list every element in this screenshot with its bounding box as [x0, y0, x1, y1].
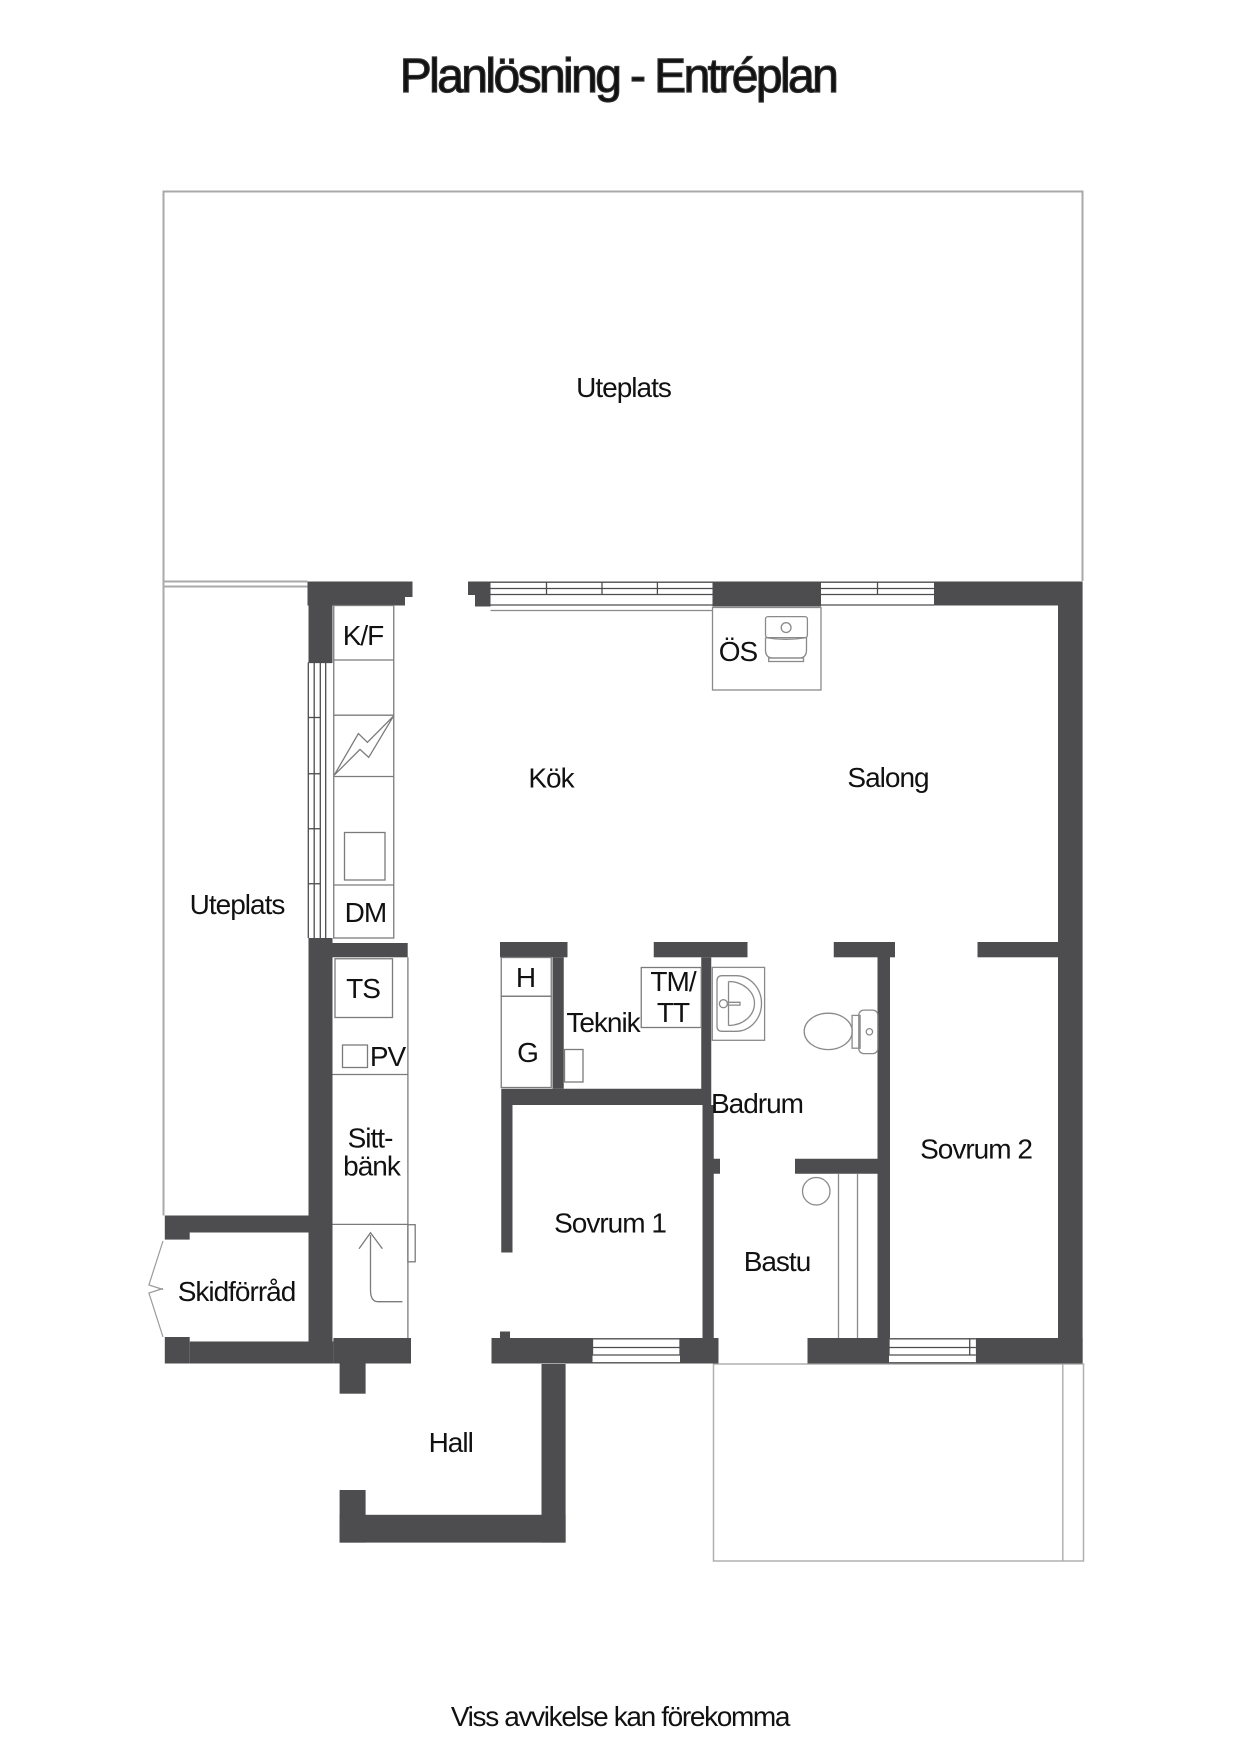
svg-text:DM: DM	[345, 897, 387, 928]
svg-text:Kök: Kök	[528, 763, 575, 794]
svg-text:TS: TS	[346, 973, 380, 1004]
svg-text:TT: TT	[657, 997, 690, 1028]
svg-text:Uteplats: Uteplats	[190, 889, 285, 920]
svg-text:Badrum: Badrum	[711, 1088, 803, 1119]
svg-text:TM/: TM/	[650, 966, 696, 997]
svg-text:ÖS: ÖS	[719, 636, 758, 667]
svg-text:Teknik: Teknik	[566, 1007, 641, 1038]
svg-text:Salong: Salong	[847, 762, 928, 793]
svg-text:Bastu: Bastu	[744, 1246, 811, 1277]
svg-text:Hall: Hall	[429, 1427, 473, 1458]
svg-text:H: H	[516, 962, 535, 993]
svg-text:bänk: bänk	[343, 1151, 402, 1182]
svg-text:Sitt-: Sitt-	[348, 1123, 393, 1154]
svg-text:Sovrum 2: Sovrum 2	[920, 1134, 1032, 1165]
svg-text:G: G	[517, 1037, 538, 1068]
svg-text:K/F: K/F	[343, 620, 384, 651]
svg-text:Planlösning - Entréplan: Planlösning - Entréplan	[400, 50, 837, 103]
svg-text:PV: PV	[370, 1041, 407, 1072]
svg-text:Sovrum 1: Sovrum 1	[554, 1208, 666, 1239]
svg-text:Skidförråd: Skidförråd	[178, 1276, 296, 1307]
svg-text:Viss avvikelse kan förekomma: Viss avvikelse kan förekomma	[451, 1701, 791, 1732]
svg-text:Uteplats: Uteplats	[576, 372, 671, 403]
